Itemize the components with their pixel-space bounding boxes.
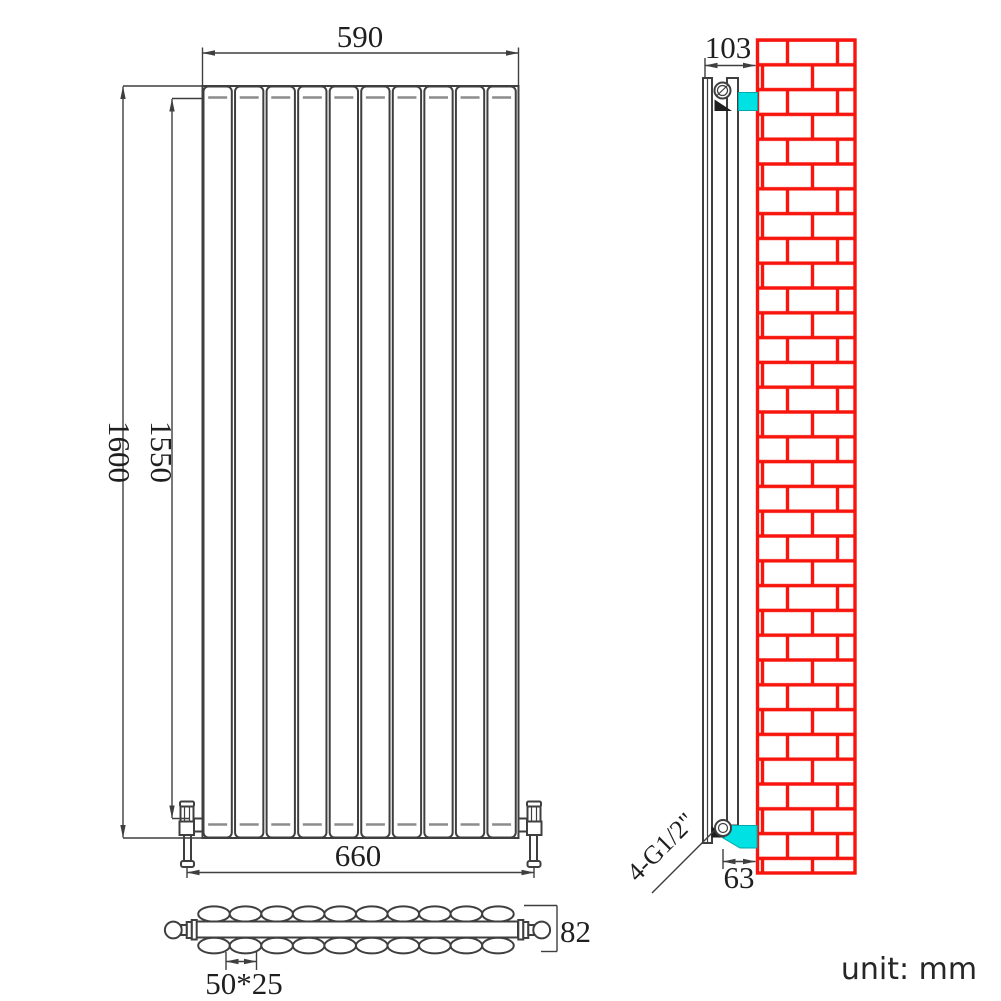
bracket-block-top: [739, 93, 758, 111]
dimension-tube-size: 50*25: [205, 952, 283, 1001]
dim-1600-label: 1600: [102, 421, 137, 483]
brick-wall: [758, 40, 856, 873]
dimension-bottom-width: 660: [187, 838, 534, 878]
dimension-overall-depth: 103: [705, 30, 756, 77]
section-ball-left: [165, 922, 182, 939]
radiator-panel: [267, 87, 295, 838]
section-end-left: [165, 920, 197, 940]
dim-50x25-label: 50*25: [205, 966, 283, 1001]
pipe-end-icon: [715, 820, 731, 836]
technical-drawing-page: 590 1600 1550 660: [0, 0, 1001, 1001]
oval-tube-rear: [230, 938, 262, 954]
side-rear-tube-column: [727, 78, 738, 826]
oval-tube-rear: [419, 938, 451, 954]
radiator-panel: [235, 87, 263, 838]
oval-tube-rear: [293, 938, 325, 954]
dimension-bottom-offset: 63: [723, 849, 756, 895]
radiator-panel: [298, 87, 326, 838]
oval-tube-rear: [356, 938, 388, 954]
dim-660-label: 660: [335, 838, 382, 873]
valve-right-union-nut: [519, 819, 528, 832]
valve-right-tail-pipe: [530, 835, 537, 862]
oval-tube-rear: [451, 938, 483, 954]
dimension-top-width: 590: [203, 19, 519, 85]
side-view: 103 63 4-G1/2": [621, 30, 855, 895]
radiator-panel: [487, 87, 515, 838]
radiator-panel: [456, 87, 484, 838]
dim-103-label: 103: [705, 30, 752, 65]
oval-tube-front: [451, 906, 483, 921]
radiator-panel: [393, 87, 421, 838]
radiator-drawing: 590 1600 1550 660: [0, 0, 1001, 1001]
unit-note: unit: mm: [841, 952, 977, 987]
oval-tube-front: [230, 906, 262, 921]
oval-tube-rear: [482, 938, 514, 954]
dimension-panel-height: 1550: [144, 99, 202, 819]
valve-left-union-nut: [194, 819, 203, 832]
section-ball-right: [533, 922, 550, 939]
valve-left-tail-pipe: [184, 835, 191, 862]
section-view: 82 50*25: [165, 906, 591, 1001]
radiator-panel: [204, 87, 232, 838]
radiator-panel: [330, 87, 358, 838]
oval-tube-front: [356, 906, 388, 921]
connection-label: 4-G1/2": [621, 807, 701, 887]
radiator-panel: [361, 87, 389, 838]
oval-tube-rear: [198, 938, 230, 954]
dim-63-label: 63: [724, 860, 755, 895]
oval-tube-front: [324, 906, 356, 921]
valve-right: [519, 802, 542, 868]
oval-tube-front: [198, 906, 230, 921]
radiator-panel: [424, 87, 452, 838]
section-header-bar: [197, 922, 519, 938]
front-view: 590 1600 1550 660: [102, 19, 542, 878]
section-end-right: [518, 920, 550, 940]
valve-left: [180, 802, 203, 868]
dim-1550-label: 1550: [144, 421, 179, 483]
connection-note: 4-G1/2": [621, 807, 714, 893]
oval-tube-rear: [324, 938, 356, 954]
dim-82-label: 82: [560, 914, 591, 949]
oval-tube-front: [419, 906, 451, 921]
oval-tube-front: [261, 906, 293, 921]
oval-tube-rear: [261, 938, 293, 954]
oval-tube-front: [293, 906, 325, 921]
oval-tube-front: [388, 906, 420, 921]
oval-tube-front: [482, 906, 514, 921]
dim-590-label: 590: [337, 19, 384, 54]
oval-tube-rear: [388, 938, 420, 954]
